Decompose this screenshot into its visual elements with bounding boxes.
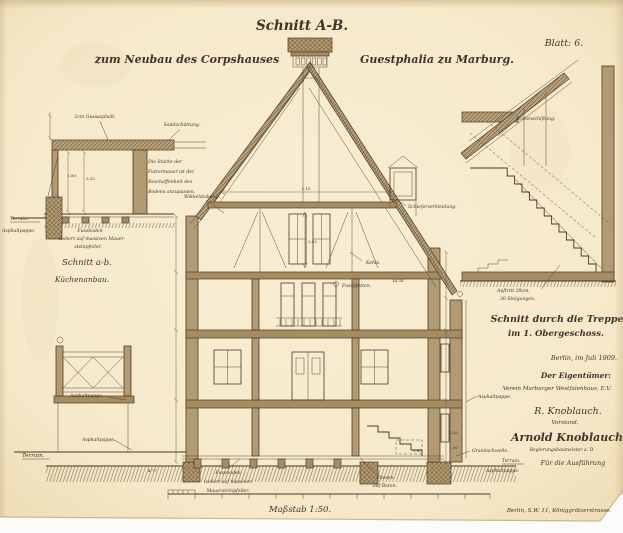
subtitle-left: zum Neubau des Corpshauses (94, 53, 279, 66)
fliesen-label-1: Fliesen (376, 475, 394, 481)
schiefer-label: Schieferverkleidung. (408, 204, 457, 210)
schuettung-label: Sandschüttung. (164, 122, 201, 128)
signature-2-role: Regierungsbaumeister a. D. (528, 447, 595, 453)
annex-exterior-wall (450, 300, 462, 462)
subtitle-right: Guestphalia zu Marburg. (360, 53, 514, 66)
dim-value: 4,77 (148, 468, 157, 473)
left-exterior-wall (186, 216, 198, 462)
auftritt-label-1: Auftritt 28cm, (496, 288, 530, 294)
center-footing (360, 462, 378, 484)
annex-caption-2: Küchenanbau. (54, 275, 109, 284)
stair-ground-hatch (460, 281, 616, 287)
ground-floor (186, 400, 462, 408)
asphaltpappe-right-high: Asphaltpappe. (477, 394, 512, 400)
first-floor (186, 330, 462, 338)
partition-wall (252, 338, 259, 400)
annex-right-wall (133, 150, 147, 214)
owner-name: Verein Marburger Westfalenhaus, E.V. (503, 386, 612, 392)
collar-beam (208, 202, 396, 208)
stair-caption-1: Schnitt durch die Treppe (490, 314, 623, 325)
fusspfetten-label: Fusspfetten. (341, 283, 372, 289)
annex-floor-pier (62, 217, 69, 223)
annex-floor-pier (82, 217, 89, 223)
right-wall-footing (427, 462, 451, 484)
auftritt-label-2: 30 Steigungen. (500, 296, 536, 302)
stair-bottom-floor (462, 272, 614, 281)
annex-terrain-label: Terrain. (10, 216, 29, 222)
note-line-3: Beschaffenheit des (147, 179, 193, 185)
asphaltpappe-left-1: Asphaltpappe. (69, 393, 104, 399)
dim-value: 3,52 (86, 176, 95, 181)
asphaltpappe-right-low: Asphaltpappe. (485, 468, 520, 474)
partition-wall (352, 338, 359, 400)
asphaltpappe-left-2: Asphaltpappe. (81, 437, 116, 443)
sheet-number: Blatt: 6. (544, 38, 584, 49)
execution-note: Für die Ausführung (540, 459, 606, 467)
wikkelstakung-label: Wikkelstakung. (184, 194, 220, 200)
stair-caption-2: im 1. Obergeschoss. (508, 329, 604, 339)
terrain-right-label: Terrain. (502, 458, 521, 464)
dim-value: 3,10 (302, 186, 311, 191)
dim-value: 2,52 (308, 239, 317, 244)
dim-value: 0,47 (413, 448, 422, 453)
signature-1-role: Vorstand. (552, 420, 579, 426)
basement-pier-wall (352, 408, 359, 456)
annex-foundation-pier (46, 197, 62, 239)
signature-1: R. Knoblauch. (533, 406, 602, 417)
address-line: Berlin, S.W. 11, Königgrätzerstrasse. (506, 508, 612, 514)
dim-value: 2,20 (449, 430, 458, 435)
annex-floor-pier (102, 217, 109, 223)
right-exterior-wall (428, 248, 440, 462)
owner-heading: Der Eigentümer: (540, 371, 611, 380)
dim-value: 14,34 (392, 278, 404, 283)
fence-post (124, 346, 131, 396)
granitschwelle-label: Granitschwelle. (472, 448, 509, 454)
kehle-label: Kehle. (365, 260, 381, 266)
main-footnote-1: Fussboden (214, 470, 240, 476)
annex-footnote-1: Fussboden (76, 228, 102, 234)
note-line-1: Die Stärke der (147, 159, 183, 165)
main-footnote-2: isoliert auf massiven (204, 479, 252, 485)
main-footnote-3: Mauersteinpfeiler. (206, 488, 250, 494)
chimney-cap (288, 38, 332, 52)
drawing-title: Schnitt A-B. (256, 18, 348, 34)
fliesen-label-2: auf Beton. (373, 483, 398, 489)
annex-floor-pier (122, 217, 129, 223)
terrain-left-label: Terrain. (22, 453, 45, 459)
stair-right-wall (602, 66, 614, 282)
annex-roof-slab (52, 140, 174, 150)
date-line: Berlin, im Juli 1909. (550, 354, 617, 362)
fence-post (56, 346, 63, 396)
annex-footnote-2: isoliert auf massiven Mauer- (59, 236, 126, 242)
partition-wall (252, 279, 259, 330)
annex-caption-1: Schnitt a-b. (62, 258, 112, 268)
annex-footnote-3: steinpfeiler. (74, 244, 102, 250)
basement-pier-wall (252, 408, 259, 456)
dim-value: 1,80 (67, 173, 76, 178)
signature-2: Arnold Knoblauch (510, 431, 623, 444)
bohlenschiftung-label: Bohlenschiftung. (515, 116, 556, 122)
chimney-cornice (291, 52, 329, 56)
scale-label: Maßstab 1:50. (268, 505, 331, 515)
attic-floor (186, 272, 442, 279)
dim-value: 1,00 (449, 445, 458, 450)
gussasphalt-label: 2cm Gussasphalt. (73, 114, 116, 120)
architectural-drawing-sheet: Schnitt A-B. zum Neubau des Corpshauses … (0, 0, 623, 533)
note-line-2: Futtermauer ist der (147, 169, 195, 175)
annex-ground-hatch (44, 223, 176, 228)
